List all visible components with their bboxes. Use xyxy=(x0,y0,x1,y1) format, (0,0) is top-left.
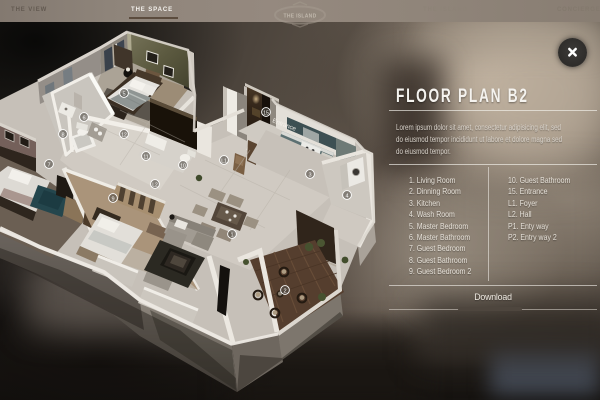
svg-text:THE ISLAND: THE ISLAND xyxy=(284,13,317,19)
svg-text:11: 11 xyxy=(143,154,148,160)
svg-text:1: 1 xyxy=(230,232,233,238)
svg-text:2: 2 xyxy=(283,288,286,294)
svg-text:6: 6 xyxy=(82,115,85,121)
svg-text:10: 10 xyxy=(180,163,186,169)
svg-text:L1: L1 xyxy=(221,158,227,164)
svg-text:L2: L2 xyxy=(152,182,158,188)
svg-text:12: 12 xyxy=(121,132,127,138)
svg-text:4: 4 xyxy=(345,193,348,199)
svg-text:5: 5 xyxy=(122,91,125,97)
svg-text:15: 15 xyxy=(263,110,269,116)
svg-text:3: 3 xyxy=(308,172,311,178)
svg-text:8: 8 xyxy=(61,132,64,138)
svg-text:9: 9 xyxy=(111,196,114,202)
svg-text:7: 7 xyxy=(47,162,50,168)
